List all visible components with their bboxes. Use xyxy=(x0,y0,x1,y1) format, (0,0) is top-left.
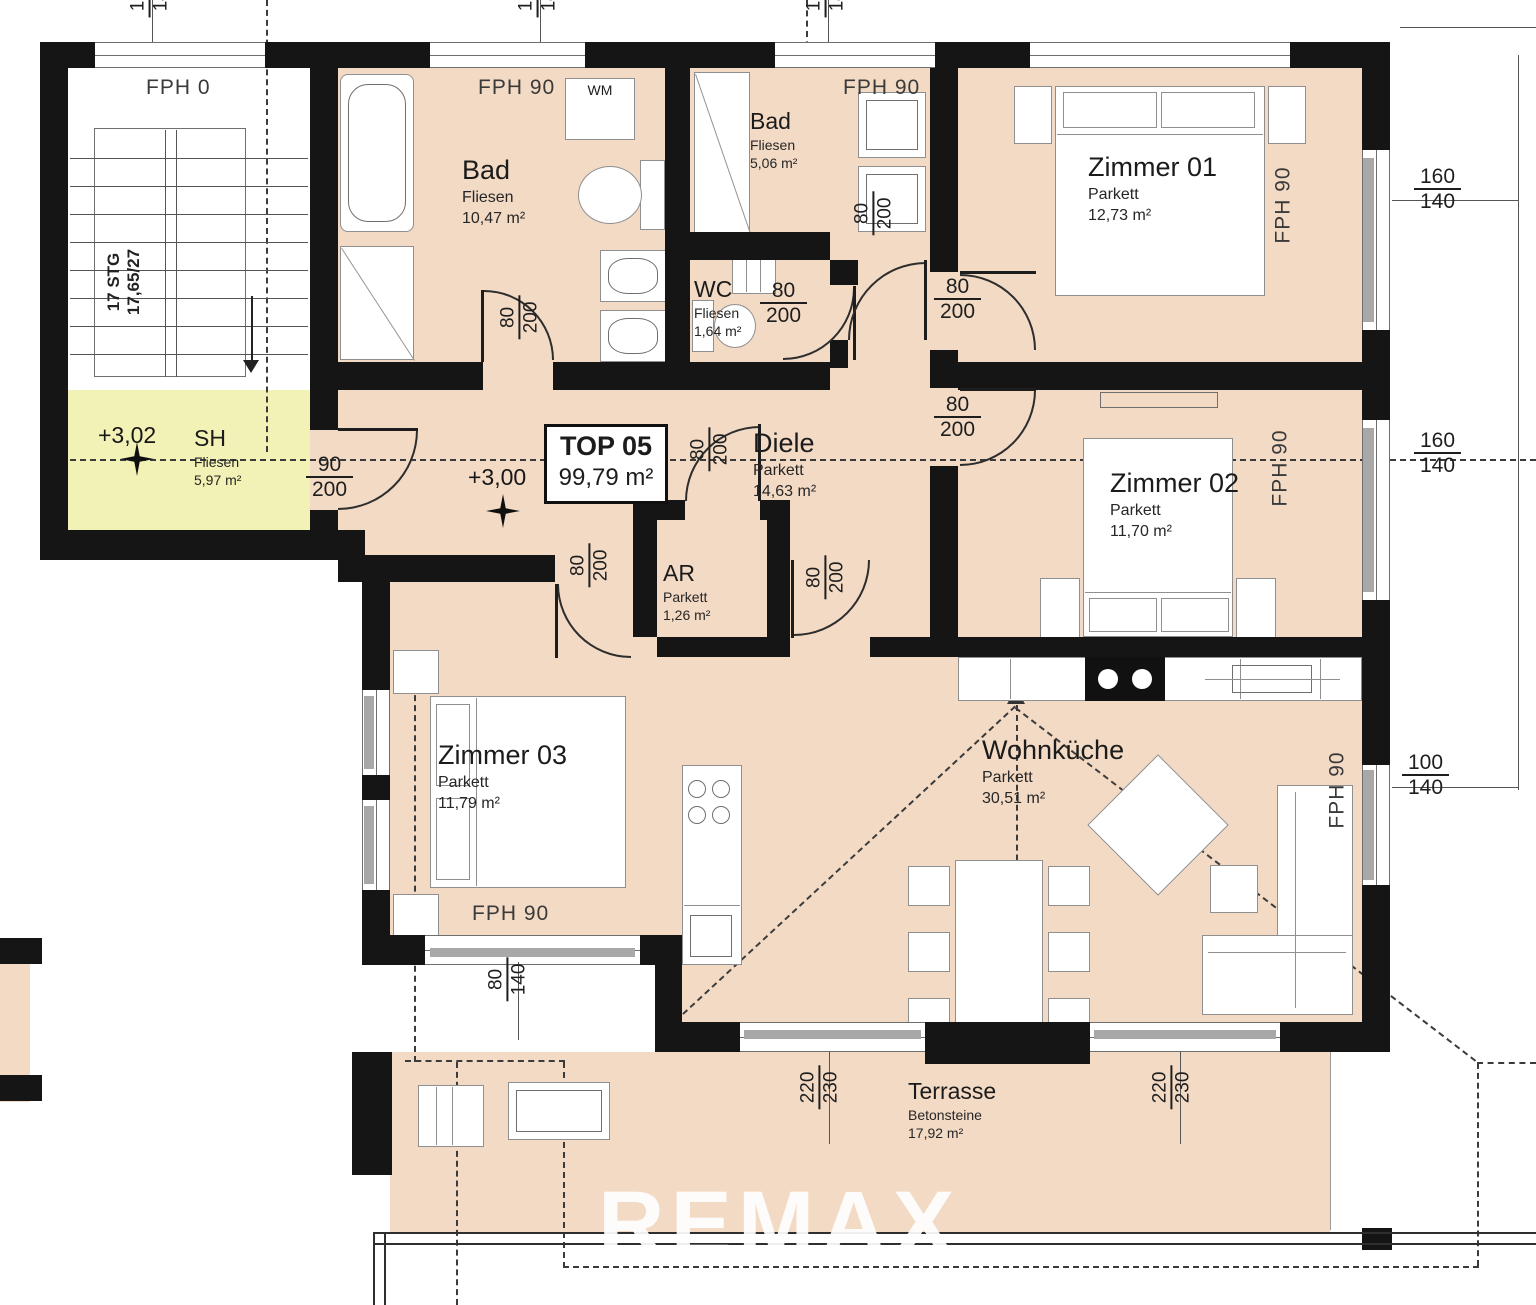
unit-area: 99,79 m² xyxy=(547,464,665,492)
exterior-white-1 xyxy=(338,560,362,1022)
wall-ar-right xyxy=(767,500,790,637)
room-area: 12,73 m² xyxy=(1088,207,1217,225)
wall-wk-bottom-b xyxy=(925,1022,1090,1064)
wall-bad1-bottom-a xyxy=(338,362,483,390)
sofa-cushion-line xyxy=(1295,792,1296,1008)
nightstand xyxy=(1014,86,1052,144)
room-label-terrasse: Terrasse Betonsteine 17,92 m² xyxy=(908,1078,996,1141)
bath-cabinet-inner xyxy=(866,100,918,150)
room-area: 11,79 m² xyxy=(438,795,567,813)
wall-bad1-bottom-b xyxy=(553,362,690,390)
dim-num: 80 xyxy=(688,439,708,460)
dim-label-window-z2: 160 140 xyxy=(1414,430,1461,477)
wall-wc-bottom xyxy=(690,362,830,390)
floor-plan-canvas: 17 STG 17,65/27 WM xyxy=(0,0,1536,1305)
counter-divider xyxy=(1010,659,1011,699)
room-name: WC xyxy=(694,276,741,303)
room-floor: Fliesen xyxy=(194,454,241,470)
pillow xyxy=(1089,598,1157,632)
door-sill xyxy=(1094,1030,1276,1039)
washing-machine-label: WM xyxy=(588,82,613,98)
sofa-cushion-line xyxy=(1208,952,1346,953)
pillow xyxy=(1161,598,1229,632)
unit-title-box: TOP 05 99,79 m² xyxy=(544,424,668,504)
oven-burner xyxy=(712,806,730,824)
wall-bad1-bad2 xyxy=(665,68,690,362)
room-label-zimmer3: Zimmer 03 Parkett 11,79 m² xyxy=(438,740,567,813)
unit-id: TOP 05 xyxy=(547,431,665,462)
kitchen-sink-line xyxy=(1205,679,1340,680)
door-leaf-zimmer2 xyxy=(960,388,1036,391)
dim-den: 200 xyxy=(306,476,353,501)
dim-label-zimmer3-door: 80 200 xyxy=(568,544,611,588)
sink-basin xyxy=(608,258,658,294)
dim-den: 140 xyxy=(1402,774,1449,799)
window-jamb xyxy=(1363,158,1374,322)
nightstand xyxy=(1268,86,1306,144)
bed-blanket-line xyxy=(1085,592,1231,593)
wall-bad2-wc xyxy=(690,232,830,260)
room-floor: Fliesen xyxy=(694,305,741,321)
dining-chair xyxy=(908,932,950,972)
wall-wk-bottom-c xyxy=(1280,1022,1390,1052)
room-name: Zimmer 01 xyxy=(1088,152,1217,183)
room-area: 11,70 m² xyxy=(1110,523,1239,541)
dim-num: 80 xyxy=(946,276,969,298)
dim-num: 80 xyxy=(568,555,588,576)
wall-corridor-c xyxy=(930,466,958,650)
dim-num: 160 xyxy=(129,0,149,11)
wall-corridor-b xyxy=(930,350,958,388)
dim-num: 160 xyxy=(805,0,825,11)
room-area: 10,47 m² xyxy=(462,210,525,228)
oven-burner xyxy=(688,806,706,824)
dim-num: 160 xyxy=(1420,430,1455,452)
nightstand xyxy=(393,650,439,694)
wall-right-c xyxy=(1362,600,1390,765)
dim-label-terrace-door-1: 220 230 xyxy=(798,1066,841,1110)
room-name: Bad xyxy=(462,155,525,186)
stair-count-label: 17 STG 17,65/27 xyxy=(104,207,148,357)
nightstand xyxy=(1236,578,1276,638)
stair-count-line1: 17 STG xyxy=(104,253,124,312)
dim-line xyxy=(1400,27,1536,28)
toilet-tank xyxy=(640,160,665,230)
window-jamb xyxy=(1363,428,1374,592)
window-jamb xyxy=(1363,770,1374,880)
door-leaf-zimmer1 xyxy=(960,271,1036,274)
dim-den: 230 xyxy=(1170,1066,1193,1110)
cooktop xyxy=(1085,657,1165,701)
dim-num: 80 xyxy=(486,969,506,990)
dim-num: 80 xyxy=(498,307,518,328)
stair-tread xyxy=(70,186,308,187)
room-name: Bad xyxy=(750,108,797,135)
wall-z1-z2 xyxy=(958,362,1362,390)
room-area: 5,97 m² xyxy=(194,472,241,488)
room-floor: Parkett xyxy=(663,589,710,605)
dim-label-z3-window: 80 140 xyxy=(486,958,529,1002)
terrace-furniture xyxy=(418,1085,484,1147)
dim-num: 80 xyxy=(772,280,795,302)
room-label-zimmer2: Zimmer 02 Parkett 11,70 m² xyxy=(1110,468,1239,541)
room-floor: Parkett xyxy=(1088,186,1217,204)
dim-label-wohnkueche-door: 80 200 xyxy=(804,556,847,600)
dim-num: 80 xyxy=(946,394,969,416)
wall-terrace-stub xyxy=(352,1052,392,1175)
room-floor: Parkett xyxy=(438,774,567,792)
counter-divider xyxy=(684,905,740,906)
room-name: Terrasse xyxy=(908,1078,996,1105)
coffee-table xyxy=(1210,865,1258,913)
dim-chain-line xyxy=(1518,55,1519,790)
terrace-edge-line xyxy=(1330,1052,1331,1230)
stair-direction-line xyxy=(251,296,253,362)
wall-hall-z3-b xyxy=(635,555,657,582)
wall-neighbor-a xyxy=(0,938,42,964)
dim-den: 200 xyxy=(934,416,981,441)
room-area: 30,51 m² xyxy=(982,790,1124,808)
room-floor: Betonsteine xyxy=(908,1107,996,1123)
dim-num: 80 xyxy=(852,203,872,224)
dim-label-zimmer1-door: 80 200 xyxy=(934,276,981,323)
dim-label-bad1-door: 80 200 xyxy=(498,296,541,340)
stair-count-line2: 17,65/27 xyxy=(124,249,144,315)
dim-den: 200 xyxy=(760,302,807,327)
dim-label-window-wk: 100 140 xyxy=(1402,752,1449,799)
dim-den: 200 xyxy=(872,192,895,236)
window xyxy=(1030,42,1290,68)
dim-den: 140 xyxy=(825,0,848,17)
terrace-railing xyxy=(384,1232,386,1305)
wall-z3-left-a xyxy=(362,560,390,690)
level-marker-stairwell: +3,02 xyxy=(98,422,156,449)
dim-label-top: 160 140 xyxy=(517,0,560,27)
room-floor: Parkett xyxy=(753,462,816,480)
room-floor: Fliesen xyxy=(462,189,525,207)
wc-sink-line xyxy=(746,258,747,292)
room-name: Diele xyxy=(753,428,816,459)
pillow xyxy=(1161,92,1255,128)
axis-line-zimmer3 xyxy=(414,655,416,1062)
wall-bad2-bottom xyxy=(830,340,848,368)
dim-num: 90 xyxy=(318,454,341,476)
dim-label-bad2-door: 80 200 xyxy=(852,192,895,236)
room-name: Zimmer 03 xyxy=(438,740,567,771)
room-label-bad1: Bad Fliesen 10,47 m² xyxy=(462,155,525,228)
wall-neighbor-b xyxy=(0,1075,42,1101)
room-name: AR xyxy=(663,560,710,587)
window-jamb xyxy=(364,806,374,884)
stair-stringer xyxy=(165,130,166,377)
dim-num: 160 xyxy=(517,0,537,11)
stair-stringer xyxy=(176,130,177,377)
dim-label-terrace-door-2: 220 230 xyxy=(1150,1066,1193,1110)
dim-num: 160 xyxy=(1420,166,1455,188)
window xyxy=(95,42,265,68)
dim-den: 140 xyxy=(506,958,529,1002)
dim-label-top: 160 140 xyxy=(805,0,848,27)
fph-label-zimmer2: FPH 90 xyxy=(1268,411,1294,526)
cooktop-burner xyxy=(1132,669,1152,689)
room-label-ar: AR Parkett 1,26 m² xyxy=(663,560,710,623)
window xyxy=(775,42,935,68)
wall-stair-right-lower xyxy=(310,510,338,560)
window xyxy=(430,42,585,68)
level-marker-apartment: +3,00 xyxy=(468,464,526,491)
window-jamb xyxy=(364,696,374,769)
cooktop-burner xyxy=(1098,669,1118,689)
wall-shelf xyxy=(1100,392,1218,408)
dim-label-sh-door: 90 200 xyxy=(306,454,353,501)
dim-den: 200 xyxy=(518,296,541,340)
washing-machine: WM xyxy=(565,78,635,140)
door-sill xyxy=(744,1030,921,1039)
wall-stair-right-upper xyxy=(310,68,338,430)
wall-right-b xyxy=(1362,330,1390,420)
room-area: 17,92 m² xyxy=(908,1125,996,1141)
terrace-furniture-inner xyxy=(516,1090,602,1132)
dim-den: 140 xyxy=(1414,188,1461,213)
dim-den: 140 xyxy=(149,0,172,17)
door-leaf-wohnkueche xyxy=(791,560,794,638)
room-area: 14,63 m² xyxy=(753,483,816,501)
fph-label-bad1: FPH 90 xyxy=(478,76,555,100)
room-label-sh: SH Fliesen 5,97 m² xyxy=(194,425,241,488)
door-leaf-zimmer3 xyxy=(555,584,558,658)
room-floor: Parkett xyxy=(1110,502,1239,520)
stair-direction-arrow-icon xyxy=(243,360,259,373)
fph-label-zimmer1: FPH 90 xyxy=(1271,148,1297,263)
room-name: Wohnküche xyxy=(982,735,1124,766)
dim-den: 200 xyxy=(824,556,847,600)
wall-left xyxy=(40,42,68,534)
door-leaf-bad1 xyxy=(481,290,484,362)
dim-label-zimmer2-door: 80 200 xyxy=(934,394,981,441)
door-leaf-bad2 xyxy=(924,260,927,340)
kitchen-appliance xyxy=(690,915,732,957)
dining-chair xyxy=(908,866,950,906)
room-label-diele: Diele Parkett 14,63 m² xyxy=(753,428,816,501)
stair-tread xyxy=(70,158,308,159)
terrace-dash-right-top xyxy=(1477,1062,1536,1064)
fph-label-zimmer3: FPH 90 xyxy=(472,902,549,926)
dim-label-wc-door: 80 200 xyxy=(760,280,807,327)
sofa-section-horizontal xyxy=(1202,935,1353,1015)
oven-burner xyxy=(688,780,706,798)
window-jamb xyxy=(430,948,635,957)
wall-z3-bottom-a xyxy=(362,935,425,965)
dining-chair xyxy=(1048,866,1090,906)
wall-z3-left-b xyxy=(362,775,390,800)
dim-label-window-z1: 160 140 xyxy=(1414,166,1461,213)
room-name: SH xyxy=(194,425,241,452)
dim-den: 200 xyxy=(708,428,731,472)
room-floor: Parkett xyxy=(982,769,1124,787)
wall-ar-top-b xyxy=(760,500,767,520)
room-label-bad2: Bad Fliesen 5,06 m² xyxy=(750,108,797,171)
room-label-wohnkueche: Wohnküche Parkett 30,51 m² xyxy=(982,735,1124,808)
room-name: Zimmer 02 xyxy=(1110,468,1239,499)
terrace-furniture-line xyxy=(452,1087,453,1145)
dim-num: 80 xyxy=(804,567,824,588)
bed-blanket-line xyxy=(1057,134,1263,135)
wall-right-a xyxy=(1362,42,1390,150)
room-area: 1,26 m² xyxy=(663,607,710,623)
room-floor: Fliesen xyxy=(750,137,797,153)
dim-den: 140 xyxy=(537,0,560,17)
toilet-bowl xyxy=(578,166,642,224)
wall-wk-bottom-a xyxy=(680,1022,740,1052)
nightstand xyxy=(393,894,439,938)
fph-label-stairwell: FPH 0 xyxy=(146,76,211,100)
oven-burner xyxy=(712,780,730,798)
dim-den: 140 xyxy=(1414,452,1461,477)
fph-label-bad2: FPH 90 xyxy=(843,76,920,100)
dim-den: 200 xyxy=(934,298,981,323)
dining-chair xyxy=(1048,932,1090,972)
sink-basin xyxy=(608,318,658,354)
pillow xyxy=(1063,92,1157,128)
room-label-zimmer1: Zimmer 01 Parkett 12,73 m² xyxy=(1088,152,1217,225)
wall-corridor-a xyxy=(930,68,958,272)
terrace-dash-top-left xyxy=(405,1060,565,1062)
wall-wc-right xyxy=(830,260,858,285)
dim-den: 200 xyxy=(588,544,611,588)
dim-label-top: 160 140 xyxy=(129,0,172,27)
wall-z2-bottom xyxy=(870,637,1362,657)
room-area: 5,06 m² xyxy=(750,155,797,171)
room-area: 1,64 m² xyxy=(694,323,741,339)
bathtub-inner xyxy=(348,84,406,222)
dim-num: 100 xyxy=(1408,752,1443,774)
terrace-dash-right xyxy=(1477,1063,1479,1266)
watermark: REMAX xyxy=(598,1172,960,1277)
dim-label-ar-door: 80 200 xyxy=(688,428,731,472)
terrace-railing xyxy=(373,1232,375,1305)
room-label-wc: WC Fliesen 1,64 m² xyxy=(694,276,741,339)
fph-label-wohnkueche: FPH 90 xyxy=(1325,733,1351,848)
exterior-white-2 xyxy=(362,965,392,1052)
door-leaf-sh xyxy=(338,428,418,431)
dining-table xyxy=(955,860,1043,1048)
wall-wk-left xyxy=(655,935,682,1052)
terrace-furniture-line xyxy=(436,1087,437,1145)
dim-den: 230 xyxy=(818,1066,841,1110)
nightstand xyxy=(1040,578,1080,638)
dim-num: 220 xyxy=(1150,1072,1170,1104)
dim-num: 220 xyxy=(798,1072,818,1104)
wall-diele-bottom xyxy=(657,637,790,657)
